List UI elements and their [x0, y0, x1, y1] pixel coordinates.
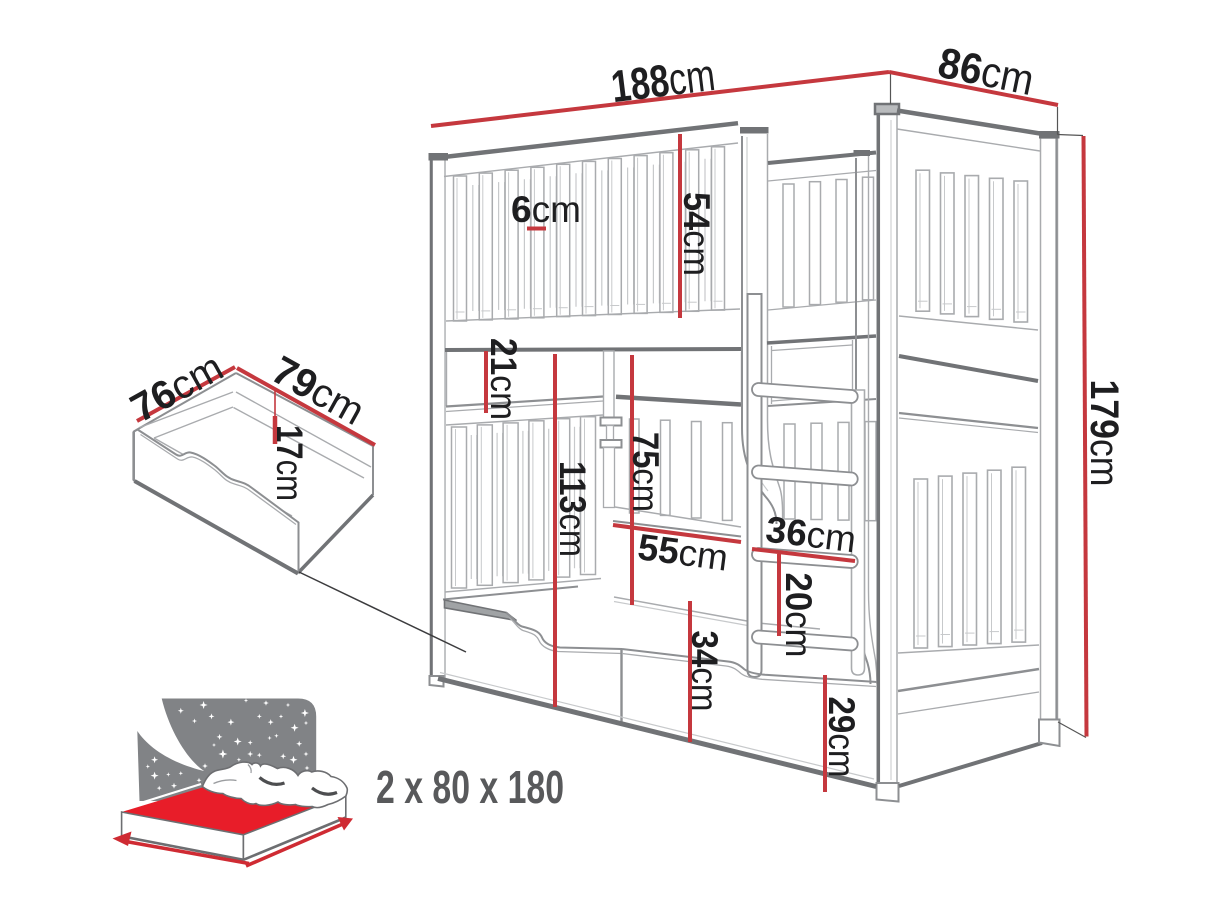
svg-text:113cm: 113cm — [553, 461, 594, 557]
svg-text:54cm: 54cm — [677, 192, 718, 276]
svg-text:21cm: 21cm — [484, 338, 525, 420]
svg-text:34cm: 34cm — [685, 631, 726, 712]
svg-text:75cm: 75cm — [626, 432, 667, 512]
svg-text:6cm: 6cm — [511, 189, 581, 230]
svg-text:17cm: 17cm — [270, 425, 311, 501]
svg-text:2 x 80 x 180: 2 x 80 x 180 — [376, 761, 564, 813]
svg-text:179cm: 179cm — [1082, 380, 1126, 487]
svg-text:20cm: 20cm — [779, 573, 820, 658]
svg-text:29cm: 29cm — [822, 697, 863, 778]
